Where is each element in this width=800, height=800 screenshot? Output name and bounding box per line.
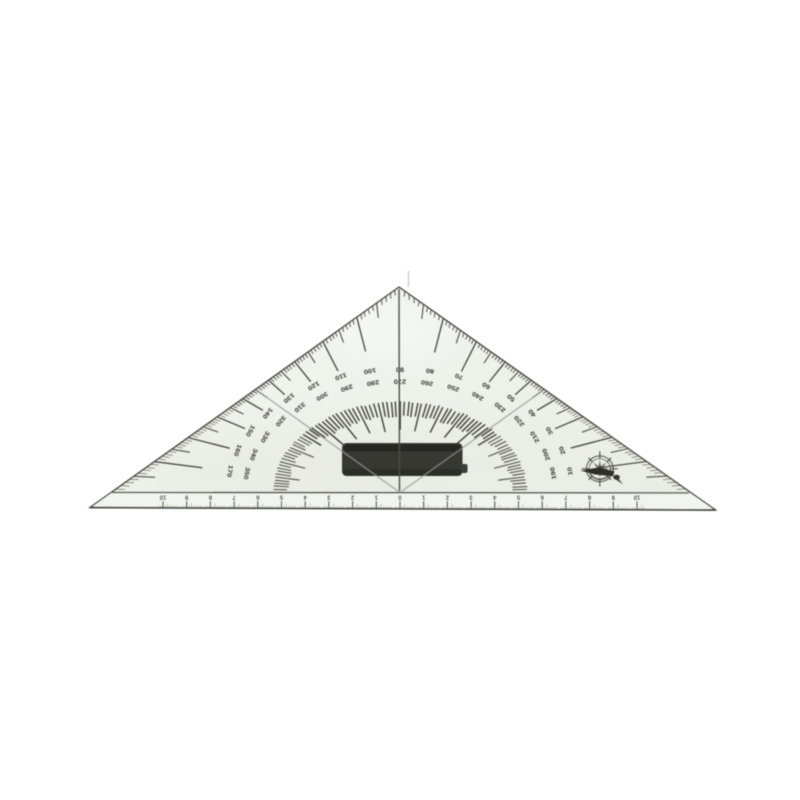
svg-text:10: 10: [159, 494, 166, 500]
svg-text:10: 10: [633, 494, 640, 500]
